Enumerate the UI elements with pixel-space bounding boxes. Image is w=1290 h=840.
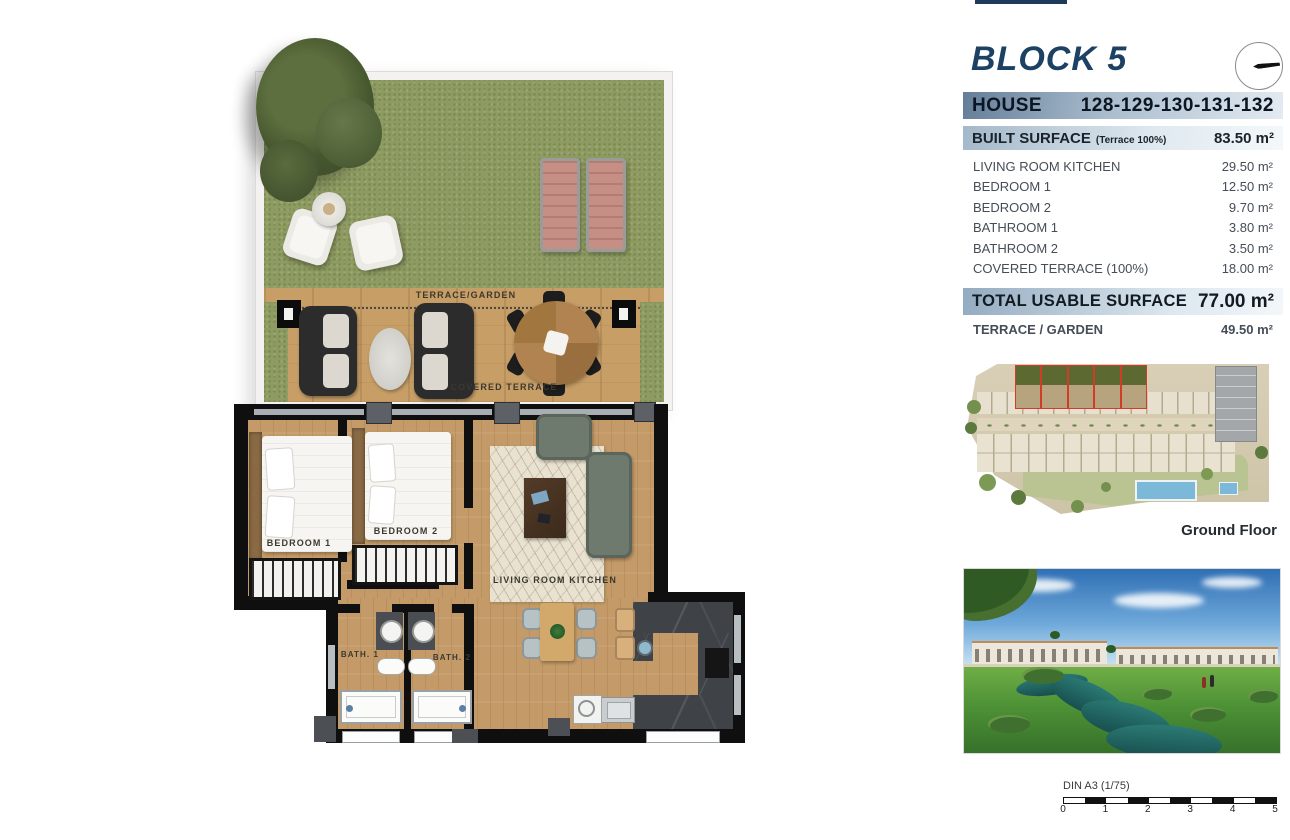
surface-row-label: BEDROOM 2 bbox=[973, 200, 1051, 215]
surface-row: BATHROOM 2 3.50 m² bbox=[963, 238, 1283, 259]
scale-tick: 5 bbox=[1272, 804, 1278, 815]
surface-row: LIVING ROOM KITCHEN 29.50 m² bbox=[963, 156, 1283, 177]
kitchen-counter-top bbox=[633, 602, 733, 633]
surface-row-value: 3.80 m² bbox=[1229, 220, 1273, 235]
sliding-door-glass bbox=[254, 409, 364, 415]
terrace-garden-row: TERRACE / GARDEN 49.50 m² bbox=[963, 322, 1283, 337]
highlighted-unit bbox=[1094, 365, 1120, 409]
scale-note: DIN A3 (1/75) bbox=[1063, 780, 1130, 792]
bed1-pillow bbox=[265, 447, 296, 491]
bath1-label: BATH. 1 bbox=[341, 650, 379, 659]
facade-post bbox=[452, 729, 478, 743]
sun-lounger bbox=[540, 158, 580, 252]
siteplan-tree bbox=[967, 400, 981, 414]
total-surface-label: TOTAL USABLE SURFACE bbox=[972, 292, 1187, 311]
bath2-vanity bbox=[408, 612, 435, 650]
compass-icon bbox=[1235, 42, 1283, 90]
brochure-page: TERRACE/GARDEN bbox=[0, 0, 1290, 840]
siteplan-tree bbox=[979, 474, 996, 491]
sun-lounger bbox=[586, 158, 626, 252]
stove bbox=[705, 648, 729, 678]
terrace-garden-value: 49.50 m² bbox=[1221, 322, 1273, 337]
bed2-pillow bbox=[368, 443, 397, 483]
kitchen-counter-bottom bbox=[633, 695, 733, 729]
house-label: HOUSE bbox=[972, 95, 1042, 117]
bed1-pillow bbox=[265, 495, 296, 539]
kitchen-stool bbox=[615, 608, 635, 632]
deck-grass-strip bbox=[640, 302, 664, 402]
siteplan-tree bbox=[965, 422, 977, 434]
terrace-column bbox=[277, 300, 301, 328]
wall-post bbox=[494, 402, 520, 424]
highlighted-unit bbox=[1041, 365, 1067, 409]
living-label: LIVING ROOM KITCHEN bbox=[493, 575, 617, 585]
scale-tick: 4 bbox=[1230, 804, 1236, 815]
bath1-toilet bbox=[377, 658, 405, 675]
surface-row: BEDROOM 2 9.70 m² bbox=[963, 197, 1283, 218]
living-armchair bbox=[536, 414, 592, 460]
total-surface-bar: TOTAL USABLE SURFACE 77.00 m² bbox=[963, 288, 1283, 315]
terrace-frame: TERRACE/GARDEN bbox=[256, 72, 672, 410]
surface-row-value: 18.00 m² bbox=[1222, 261, 1273, 276]
siteplan-tree bbox=[1201, 468, 1213, 480]
photo-bush bbox=[1190, 707, 1226, 722]
siteplan-road bbox=[977, 418, 1249, 431]
bed1-headboard bbox=[249, 432, 262, 560]
surface-row: COVERED TERRACE (100%) 18.00 m² bbox=[963, 259, 1283, 280]
sliding-door-glass bbox=[392, 409, 492, 415]
garden-side-table bbox=[312, 192, 346, 226]
scale-bar bbox=[1063, 797, 1277, 804]
photo-cloud bbox=[1114, 593, 1204, 608]
wall-post bbox=[366, 402, 392, 424]
kitchen-sink bbox=[637, 640, 653, 656]
surface-row-label: COVERED TERRACE (100%) bbox=[973, 261, 1148, 276]
built-surface-note: (Terrace 100%) bbox=[1096, 135, 1166, 146]
built-surface-value: 83.50 m² bbox=[1214, 130, 1274, 147]
siteplan-thumbnail bbox=[963, 362, 1283, 520]
surface-row-label: BEDROOM 1 bbox=[973, 179, 1051, 194]
dining-chair bbox=[576, 608, 597, 630]
siteplan-tree bbox=[1255, 446, 1268, 459]
garden-armchair bbox=[347, 214, 404, 273]
header-sliver bbox=[975, 0, 1067, 4]
photo-golfer bbox=[1202, 677, 1206, 688]
facade-post bbox=[548, 718, 570, 736]
window-sill bbox=[342, 731, 400, 743]
siteplan-caption: Ground Floor bbox=[963, 522, 1277, 539]
terrace-garden-label: TERRACE/GARDEN bbox=[416, 290, 516, 300]
terrace-garden-label: TERRACE / GARDEN bbox=[973, 322, 1103, 337]
bath1-vanity bbox=[376, 612, 403, 650]
siteplan-tree bbox=[1101, 482, 1111, 492]
living-coffee-table bbox=[524, 478, 566, 538]
outdoor-sofa bbox=[299, 306, 357, 396]
dining-table bbox=[540, 603, 574, 661]
photo-palm bbox=[1106, 645, 1116, 653]
total-surface-value: 77.00 m² bbox=[1198, 291, 1274, 313]
photo-palm bbox=[1050, 631, 1060, 639]
photo-bush bbox=[988, 715, 1030, 733]
window bbox=[328, 645, 335, 689]
siteplan-pool bbox=[1135, 480, 1197, 501]
block-title: BLOCK 5 bbox=[971, 40, 1127, 79]
spec-sidebar: BLOCK 5 HOUSE 128-129-130-131-132 BUILT … bbox=[963, 0, 1283, 840]
dining-chair bbox=[576, 637, 597, 659]
window bbox=[734, 615, 741, 663]
house-bar: HOUSE 128-129-130-131-132 bbox=[963, 92, 1283, 119]
scale-tick: 0 bbox=[1060, 804, 1066, 815]
bed2-headboard bbox=[352, 428, 365, 544]
scale-tick: 1 bbox=[1103, 804, 1109, 815]
bath2-toilet bbox=[408, 658, 436, 675]
garden-area bbox=[264, 80, 664, 288]
highlighted-unit bbox=[1068, 365, 1094, 409]
built-surface-bar: BUILT SURFACE (Terrace 100%) 83.50 m² bbox=[963, 126, 1283, 150]
highlighted-unit bbox=[1121, 365, 1147, 409]
covered-terrace-label: COVERED TERRACE bbox=[450, 382, 557, 392]
surface-row-value: 3.50 m² bbox=[1229, 241, 1273, 256]
photo-golfer bbox=[1210, 675, 1214, 687]
siteplan-tree bbox=[1011, 490, 1026, 505]
facade-post bbox=[314, 716, 336, 742]
wall-post bbox=[634, 402, 656, 422]
surface-row-label: LIVING ROOM KITCHEN bbox=[973, 159, 1120, 174]
house-numbers: 128-129-130-131-132 bbox=[1081, 95, 1274, 117]
bedroom2-label: BEDROOM 2 bbox=[374, 526, 438, 536]
surface-row-value: 12.50 m² bbox=[1222, 179, 1273, 194]
terrace-column bbox=[612, 300, 636, 328]
surface-row-label: BATHROOM 2 bbox=[973, 241, 1058, 256]
siteplan-highlighted-units bbox=[1015, 365, 1147, 409]
bedroom1-label: BEDROOM 1 bbox=[267, 538, 331, 548]
bath2-shower bbox=[412, 690, 472, 724]
surface-row: BATHROOM 1 3.80 m² bbox=[963, 218, 1283, 239]
living-sofa bbox=[586, 452, 632, 558]
scale-ticks: 0 1 2 3 4 5 bbox=[1063, 804, 1275, 818]
floorplan: TERRACE/GARDEN bbox=[0, 0, 960, 840]
wall-bed2-living-stub bbox=[464, 543, 473, 589]
photo-bush bbox=[1248, 689, 1278, 703]
photo-bush bbox=[1142, 687, 1172, 700]
photo-bush bbox=[1022, 667, 1064, 684]
wall-right-upper bbox=[654, 404, 668, 604]
surface-rows: LIVING ROOM KITCHEN 29.50 m² BEDROOM 1 1… bbox=[963, 156, 1283, 279]
wall-bath-top bbox=[338, 604, 360, 613]
kitchen-stool bbox=[615, 636, 635, 660]
tree-foliage bbox=[316, 98, 382, 168]
washing-machine bbox=[573, 695, 602, 724]
tree-foliage bbox=[260, 140, 318, 202]
window bbox=[734, 675, 741, 715]
highlighted-unit bbox=[1015, 365, 1041, 409]
outdoor-dining-set bbox=[511, 293, 611, 393]
outdoor-coffee-table bbox=[369, 328, 411, 390]
siteplan-unit-row bbox=[977, 434, 1235, 472]
wall-bed2-living bbox=[464, 416, 473, 508]
sink-unit bbox=[601, 697, 635, 723]
surface-row-value: 29.50 m² bbox=[1222, 159, 1273, 174]
scale-tick: 2 bbox=[1145, 804, 1151, 815]
project-photo bbox=[963, 568, 1281, 754]
siteplan-pool-small bbox=[1219, 482, 1238, 495]
built-surface-label: BUILT SURFACE bbox=[972, 130, 1091, 147]
window-sill bbox=[646, 731, 720, 743]
photo-cloud bbox=[1202, 577, 1262, 588]
siteplan-parking bbox=[1215, 366, 1257, 442]
surface-row: BEDROOM 1 12.50 m² bbox=[963, 177, 1283, 198]
siteplan-tree bbox=[1071, 500, 1084, 513]
terrace-deck: TERRACE/GARDEN bbox=[264, 288, 664, 402]
surface-row-value: 9.70 m² bbox=[1229, 200, 1273, 215]
scale-tick: 3 bbox=[1187, 804, 1193, 815]
bed1-wardrobe bbox=[249, 558, 341, 600]
bed2-pillow bbox=[368, 485, 397, 525]
bed2-wardrobe bbox=[352, 545, 458, 585]
bath2-label: BATH. 2 bbox=[433, 653, 471, 662]
wall-left bbox=[234, 404, 248, 610]
surface-row-label: BATHROOM 1 bbox=[973, 220, 1058, 235]
bath1-shower bbox=[340, 690, 402, 724]
